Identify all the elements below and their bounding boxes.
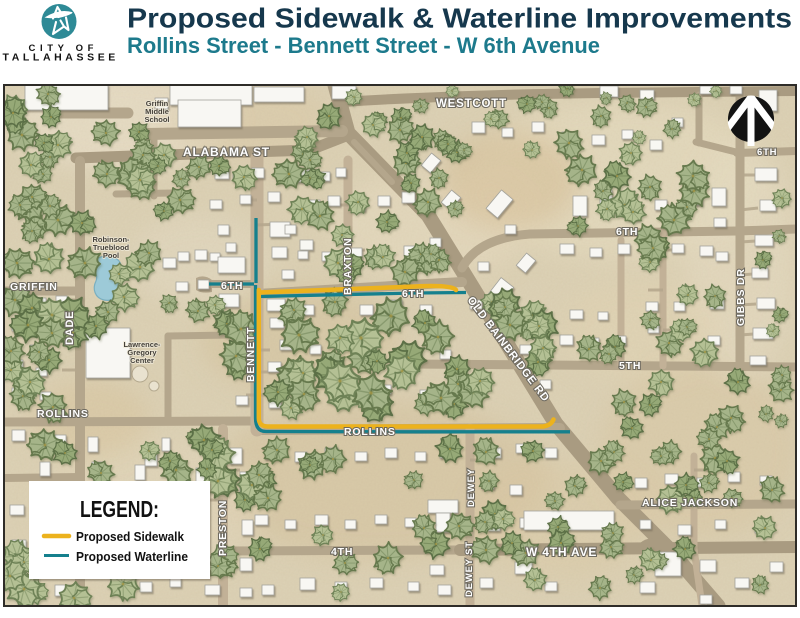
svg-text:ALABAMA ST: ALABAMA ST bbox=[183, 145, 270, 159]
svg-text:6TH: 6TH bbox=[616, 226, 638, 238]
svg-text:Proposed Sidewalk & Waterline: Proposed Sidewalk & Waterline Improvemen… bbox=[127, 3, 792, 34]
svg-text:WESTCOTT: WESTCOTT bbox=[436, 98, 507, 110]
svg-text:Pool: Pool bbox=[103, 251, 119, 260]
svg-text:ROLLINS: ROLLINS bbox=[37, 408, 89, 420]
svg-text:6TH: 6TH bbox=[757, 147, 777, 158]
svg-text:School: School bbox=[144, 115, 169, 124]
svg-text:4TH: 4TH bbox=[331, 546, 353, 558]
svg-text:LEGEND:: LEGEND: bbox=[80, 496, 159, 522]
svg-text:BRAXTON: BRAXTON bbox=[342, 238, 354, 295]
svg-text:DEWEY ST: DEWEY ST bbox=[464, 541, 475, 597]
svg-text:TALLAHASSEE: TALLAHASSEE bbox=[3, 52, 119, 64]
svg-text:Proposed Sidewalk: Proposed Sidewalk bbox=[76, 530, 184, 544]
svg-text:Center: Center bbox=[130, 356, 154, 365]
svg-text:GIBBS DR: GIBBS DR bbox=[735, 268, 747, 326]
svg-text:DADE: DADE bbox=[64, 311, 76, 345]
svg-text:Rollins Street - Bennett Stree: Rollins Street - Bennett Street - W 6th … bbox=[127, 33, 600, 58]
svg-text:ROLLINS: ROLLINS bbox=[344, 426, 396, 438]
svg-text:GRIFFIN: GRIFFIN bbox=[10, 281, 58, 293]
svg-text:5TH: 5TH bbox=[619, 360, 641, 372]
svg-text:ALICE JACKSON: ALICE JACKSON bbox=[642, 497, 738, 509]
svg-text:6TH: 6TH bbox=[402, 288, 424, 300]
svg-text:DEWEY: DEWEY bbox=[466, 468, 477, 507]
svg-text:BENNETT: BENNETT bbox=[245, 327, 257, 382]
svg-text:PRESTON: PRESTON bbox=[217, 500, 229, 556]
svg-text:6TH: 6TH bbox=[221, 280, 243, 292]
svg-text:W 4TH AVE: W 4TH AVE bbox=[526, 545, 597, 559]
svg-text:Proposed Waterline: Proposed Waterline bbox=[76, 550, 188, 564]
